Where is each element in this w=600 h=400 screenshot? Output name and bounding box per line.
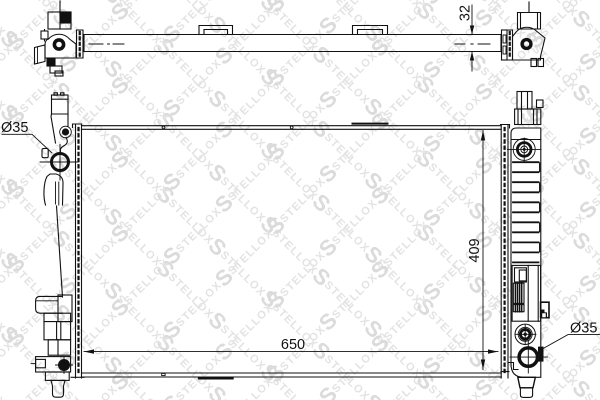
svg-text:32: 32 [458, 5, 474, 21]
svg-text:409: 409 [467, 238, 483, 262]
svg-text:Ø35: Ø35 [570, 321, 597, 337]
svg-text:650: 650 [281, 337, 305, 353]
svg-text:Ø35: Ø35 [1, 120, 28, 136]
